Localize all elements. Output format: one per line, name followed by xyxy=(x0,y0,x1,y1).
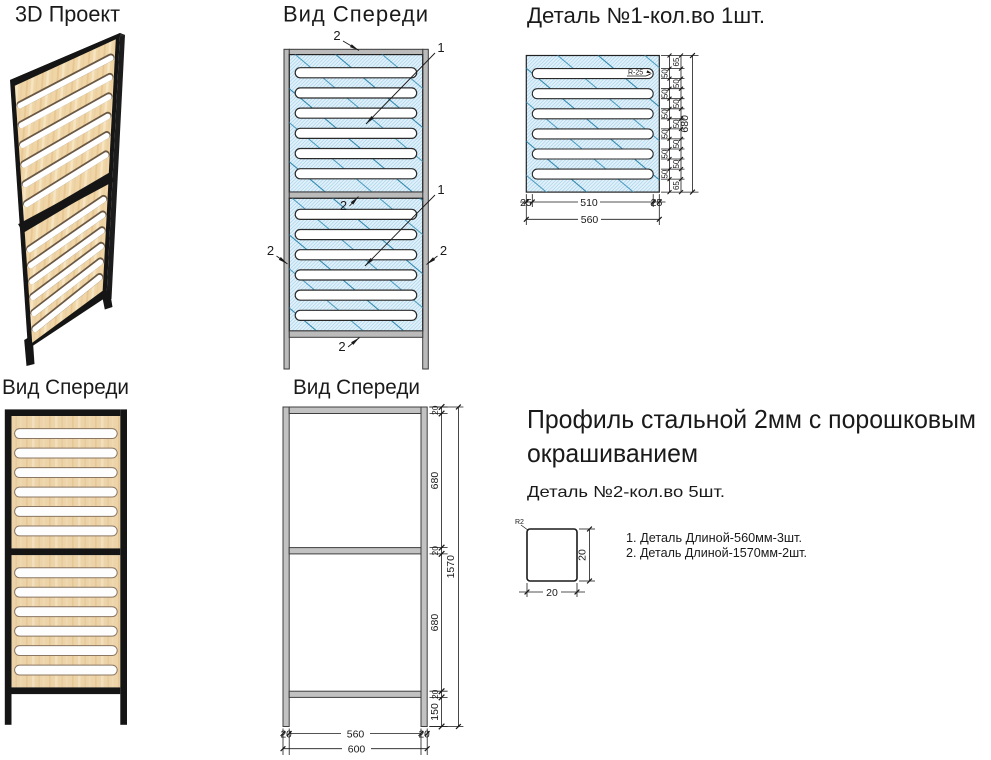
svg-text:20: 20 xyxy=(430,405,440,415)
svg-text:680: 680 xyxy=(429,614,441,632)
svg-text:окрашиванием: окрашиванием xyxy=(527,438,698,468)
svg-text:50: 50 xyxy=(672,159,681,168)
svg-text:Вид Спереди: Вид Спереди xyxy=(283,2,429,27)
svg-text:680: 680 xyxy=(429,472,441,490)
svg-text:R-25: R-25 xyxy=(628,70,643,77)
svg-text:2: 2 xyxy=(340,198,347,213)
svg-text:3D Проект: 3D Проект xyxy=(15,2,120,27)
svg-text:50: 50 xyxy=(672,79,681,88)
svg-text:50: 50 xyxy=(661,69,670,78)
svg-text:510: 510 xyxy=(580,197,598,209)
svg-text:R2: R2 xyxy=(515,519,524,526)
svg-text:50: 50 xyxy=(672,139,681,148)
svg-text:560: 560 xyxy=(581,214,599,226)
svg-text:150: 150 xyxy=(429,703,441,721)
svg-text:1: 1 xyxy=(437,40,444,55)
svg-text:65: 65 xyxy=(672,181,681,190)
svg-text:20: 20 xyxy=(281,730,293,741)
svg-text:2: 2 xyxy=(267,243,274,258)
svg-text:Вид Спереди: Вид Спереди xyxy=(293,376,420,399)
svg-text:Деталь №1-кол.во 1шт.: Деталь №1-кол.во 1шт. xyxy=(527,3,765,28)
svg-text:20: 20 xyxy=(430,546,440,556)
svg-text:50: 50 xyxy=(672,99,681,108)
svg-text:25: 25 xyxy=(651,197,663,209)
svg-text:560: 560 xyxy=(347,728,365,740)
svg-text:2: 2 xyxy=(333,28,340,43)
svg-text:50: 50 xyxy=(661,89,670,98)
svg-text:50: 50 xyxy=(661,149,670,158)
svg-text:2: 2 xyxy=(338,339,345,354)
svg-text:Деталь №2-кол.во 5шт.: Деталь №2-кол.во 5шт. xyxy=(527,484,725,501)
svg-text:20: 20 xyxy=(546,587,558,599)
svg-text:50: 50 xyxy=(661,129,670,138)
svg-text:680: 680 xyxy=(679,115,691,133)
svg-text:20: 20 xyxy=(430,689,440,699)
svg-text:50: 50 xyxy=(661,169,670,178)
svg-text:600: 600 xyxy=(348,744,366,756)
svg-text:20: 20 xyxy=(577,549,589,561)
svg-text:Профиль стальной 2мм с порошко: Профиль стальной 2мм с порошковым xyxy=(527,404,976,434)
svg-text:65: 65 xyxy=(672,57,681,66)
svg-text:1. Деталь Длиной-560мм-3шт.: 1. Деталь Длиной-560мм-3шт. xyxy=(626,531,802,545)
svg-text:2. Деталь Длиной-1570мм-2шт.: 2. Деталь Длиной-1570мм-2шт. xyxy=(626,546,807,560)
svg-text:50: 50 xyxy=(661,109,670,118)
svg-text:25: 25 xyxy=(520,197,532,209)
svg-text:1: 1 xyxy=(437,182,444,197)
svg-text:1570: 1570 xyxy=(445,555,457,579)
svg-text:Вид Спереди: Вид Спереди xyxy=(2,376,129,399)
svg-text:2: 2 xyxy=(440,243,447,258)
svg-text:20: 20 xyxy=(419,730,431,741)
